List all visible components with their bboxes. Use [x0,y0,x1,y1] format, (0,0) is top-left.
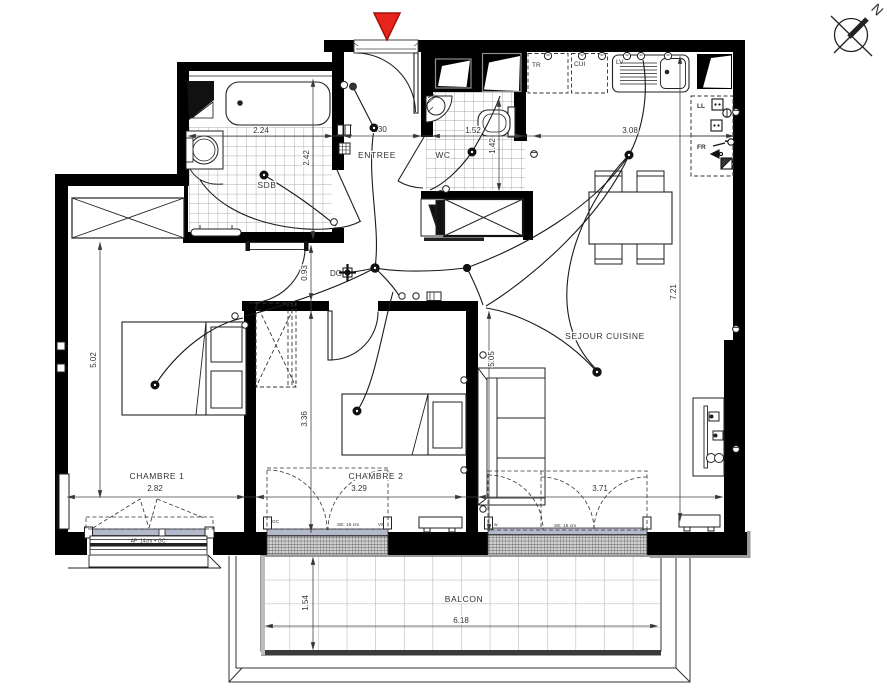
svg-text:3.36: 3.36 [300,411,309,427]
svg-text:3.29: 3.29 [351,484,367,493]
svg-text:GC: GC [272,519,280,525]
svg-text:DG: DG [330,269,342,278]
svg-text:2.82: 2.82 [147,484,163,493]
svg-text:2.42: 2.42 [302,150,311,166]
svg-text:VB: VB [378,522,384,528]
svg-text:CHAMBRE 2: CHAMBRE 2 [349,471,404,481]
svg-text:2.24: 2.24 [253,126,269,135]
svg-text:AP: 14cm + GC: AP: 14cm + GC [131,539,166,545]
svg-text:5.05: 5.05 [487,351,496,367]
svg-text:5.02: 5.02 [89,352,98,368]
svg-text:1.54: 1.54 [301,595,310,611]
svg-text:SEJOUR CUISINE: SEJOUR CUISINE [565,331,645,341]
svg-text:LV: LV [616,59,624,66]
svg-text:3.08: 3.08 [622,126,638,135]
svg-text:3.71: 3.71 [592,484,608,493]
svg-text:w: w [494,523,498,528]
svg-text:WC: WC [435,150,450,160]
svg-text:SE: 15 cm: SE: 15 cm [337,522,359,528]
svg-text:SDB: SDB [257,180,276,190]
svg-text:FR: FR [697,144,706,151]
svg-text:BALCON: BALCON [445,594,484,604]
svg-text:7.21: 7.21 [669,284,678,300]
svg-text:1.42: 1.42 [488,138,497,154]
svg-text:CHAMBRE 1: CHAMBRE 1 [130,471,185,481]
svg-text:1.52: 1.52 [465,126,481,135]
svg-text:SE: 15 cm: SE: 15 cm [554,523,576,529]
svg-text:6.18: 6.18 [453,616,469,625]
svg-text:CUI: CUI [574,61,585,68]
svg-text:ENTREE: ENTREE [358,150,396,160]
svg-text:0.93: 0.93 [300,265,309,281]
svg-text:TR: TR [532,62,541,69]
svg-text:LL: LL [697,103,705,110]
